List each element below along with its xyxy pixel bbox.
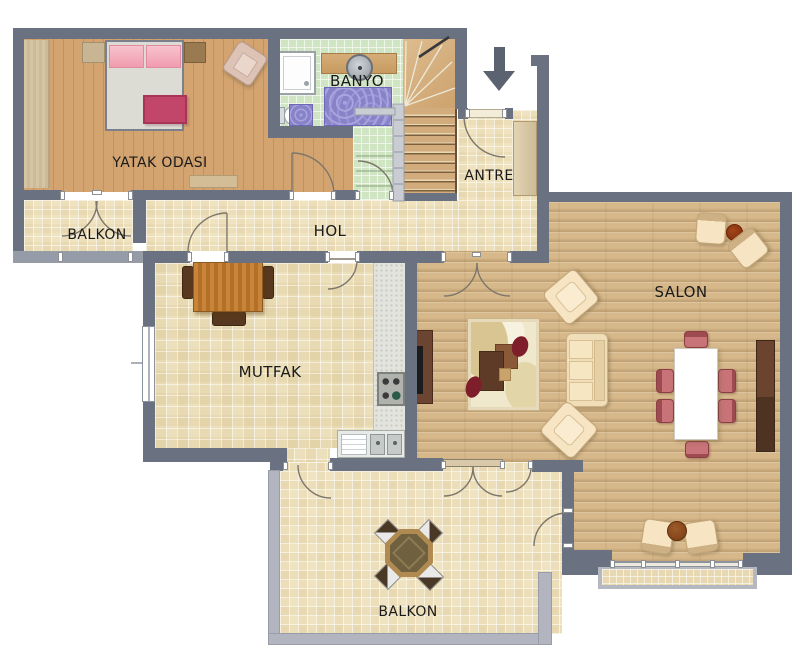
wall xyxy=(532,460,583,472)
dining-chair xyxy=(685,441,709,458)
entry-threshold xyxy=(466,109,506,118)
coffee-table-block xyxy=(499,368,511,381)
sofa xyxy=(566,333,608,407)
room-label-yatak-odasi: YATAK ODASI xyxy=(112,155,207,171)
wall xyxy=(13,28,24,263)
window-ledge xyxy=(598,567,757,589)
stove xyxy=(377,372,405,406)
antre-closet xyxy=(513,121,537,196)
kitchen-table xyxy=(193,262,263,312)
dining-chair xyxy=(684,331,708,348)
wall xyxy=(405,263,417,458)
dining-table xyxy=(674,348,718,440)
dining-chair xyxy=(718,399,736,423)
wall xyxy=(13,28,467,39)
upper-balcony-floor xyxy=(24,200,133,251)
tv xyxy=(416,346,423,394)
wall xyxy=(13,190,62,200)
balcony-table xyxy=(385,529,433,577)
wall xyxy=(403,193,457,201)
kitchen-window xyxy=(142,326,155,402)
dining-chair xyxy=(656,369,674,393)
kitchen-chair xyxy=(212,311,246,326)
dining-chair xyxy=(718,369,736,393)
wall xyxy=(455,39,467,109)
room-label-balkon-ust: BALKON xyxy=(67,227,126,243)
wall xyxy=(330,458,443,471)
kitchen-sink xyxy=(337,430,405,458)
bed-pillow xyxy=(109,45,144,68)
window-side-table xyxy=(667,521,687,541)
floor-plan: YATAK ODASI BANYO ANTRE BALKON HOL MUTFA… xyxy=(0,0,800,668)
balcony-door-leaf xyxy=(443,459,503,467)
kitchen-counter xyxy=(373,263,405,458)
stairs-flight xyxy=(403,108,457,201)
sideboard xyxy=(756,340,775,452)
upper-balcony-rail xyxy=(13,251,143,263)
wall xyxy=(268,126,353,138)
window-sill-mark xyxy=(131,362,142,364)
wall xyxy=(357,251,444,263)
bath-rug-small xyxy=(289,104,313,126)
bath-rug-large xyxy=(324,87,392,126)
wall xyxy=(270,448,283,471)
entry-arrow-icon xyxy=(483,47,515,91)
room-label-mutfak: MUTFAK xyxy=(239,363,302,381)
nightstand xyxy=(184,42,206,63)
bedroom-dresser xyxy=(189,175,238,188)
lower-balcony-rail xyxy=(538,572,552,645)
lower-balcony-rail xyxy=(268,470,280,645)
bedroom-closet xyxy=(24,40,50,188)
kitchen-chair xyxy=(262,266,274,299)
wall xyxy=(537,55,549,263)
wall xyxy=(131,190,292,200)
room-label-salon: SALON xyxy=(655,283,708,301)
wall xyxy=(268,39,280,138)
dining-chair xyxy=(656,399,674,423)
bed-pillow xyxy=(146,45,181,68)
wall xyxy=(227,251,328,263)
nightstand xyxy=(82,42,105,63)
room-label-balkon-alt: BALKON xyxy=(378,604,437,620)
bed-blanket xyxy=(143,95,187,124)
wall xyxy=(780,192,792,575)
room-label-banyo: BANYO xyxy=(330,72,384,90)
corner-chair xyxy=(695,212,727,245)
wall xyxy=(540,192,780,202)
wall xyxy=(510,251,549,263)
shower xyxy=(278,51,316,95)
room-label-antre: ANTRE xyxy=(464,168,513,184)
room-label-hol: HOL xyxy=(314,222,347,240)
wall xyxy=(133,190,146,243)
window-chair xyxy=(683,519,720,556)
wall xyxy=(143,448,287,462)
stairs-winder xyxy=(403,39,457,108)
lower-balcony-rail xyxy=(268,633,552,645)
